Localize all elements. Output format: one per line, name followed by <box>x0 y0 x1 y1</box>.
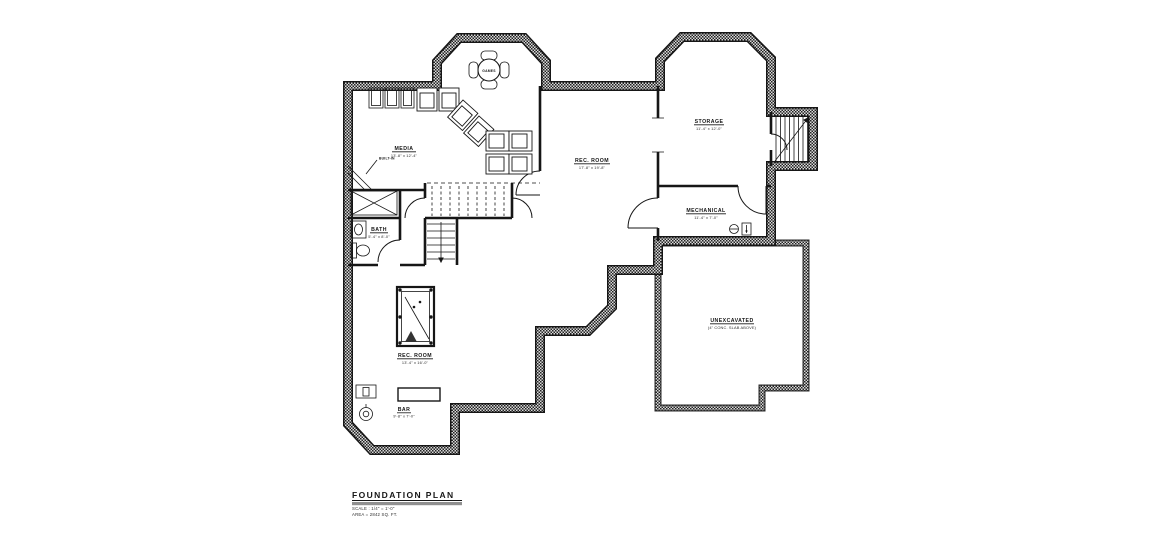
storage-label: STORAGE <box>695 119 724 125</box>
title-block: FOUNDATION PLAN SCALE : 1/4" = 1'-0" ARE… <box>352 490 462 517</box>
drawing-title: FOUNDATION PLAN <box>352 490 455 500</box>
scale-note: SCALE : 1/4" = 1'-0" <box>352 506 395 511</box>
media-label: MEDIA <box>395 146 414 152</box>
bath-label: BATH <box>371 227 387 233</box>
bar-label: BAR <box>398 407 411 413</box>
bar-dims: 9'-8" x 7'-0" <box>393 414 415 419</box>
rec-room-lower-label: REC. ROOM <box>398 353 432 359</box>
rec-room-upper-label-group: REC. ROOM 17'-8" x 19'-8" <box>574 158 610 170</box>
title-underline-bar <box>352 502 462 505</box>
storage-label-group: STORAGE 11'-4" x 12'-0" <box>694 119 724 131</box>
area-note: AREA = 2842 SQ. FT. <box>352 512 397 517</box>
games-label: GAMES <box>482 69 496 73</box>
bar-counter <box>398 388 440 401</box>
bath-dims: 5'-4" x 8'-0" <box>368 234 390 239</box>
foundation-plan-drawing: GAMES <box>0 0 1153 536</box>
mechanical-label: MECHANICAL <box>686 208 726 214</box>
media-dims: 13'-8" x 12'-4" <box>391 153 418 158</box>
built-in-label: BUILT-IN <box>379 157 395 161</box>
unexcavated-label-group: UNEXCAVATED (4" CONC. SLAB ABOVE) <box>708 318 757 330</box>
rec-room-lower-dims: 13'-4" x 16'-0" <box>402 360 429 365</box>
pool-table <box>397 287 434 346</box>
unexcavated-label: UNEXCAVATED <box>710 318 753 324</box>
mechanical-dims: 11'-4" x 7'-0" <box>694 215 718 220</box>
unexcavated-note: (4" CONC. SLAB ABOVE) <box>708 325 757 330</box>
storage-dims: 11'-4" x 12'-0" <box>696 126 722 131</box>
rec-room-upper-dims: 17'-8" x 19'-8" <box>579 165 606 170</box>
rec-room-upper-label: REC. ROOM <box>575 158 609 164</box>
rec-room-lower-label-group: REC. ROOM 13'-4" x 16'-0" <box>397 353 433 365</box>
